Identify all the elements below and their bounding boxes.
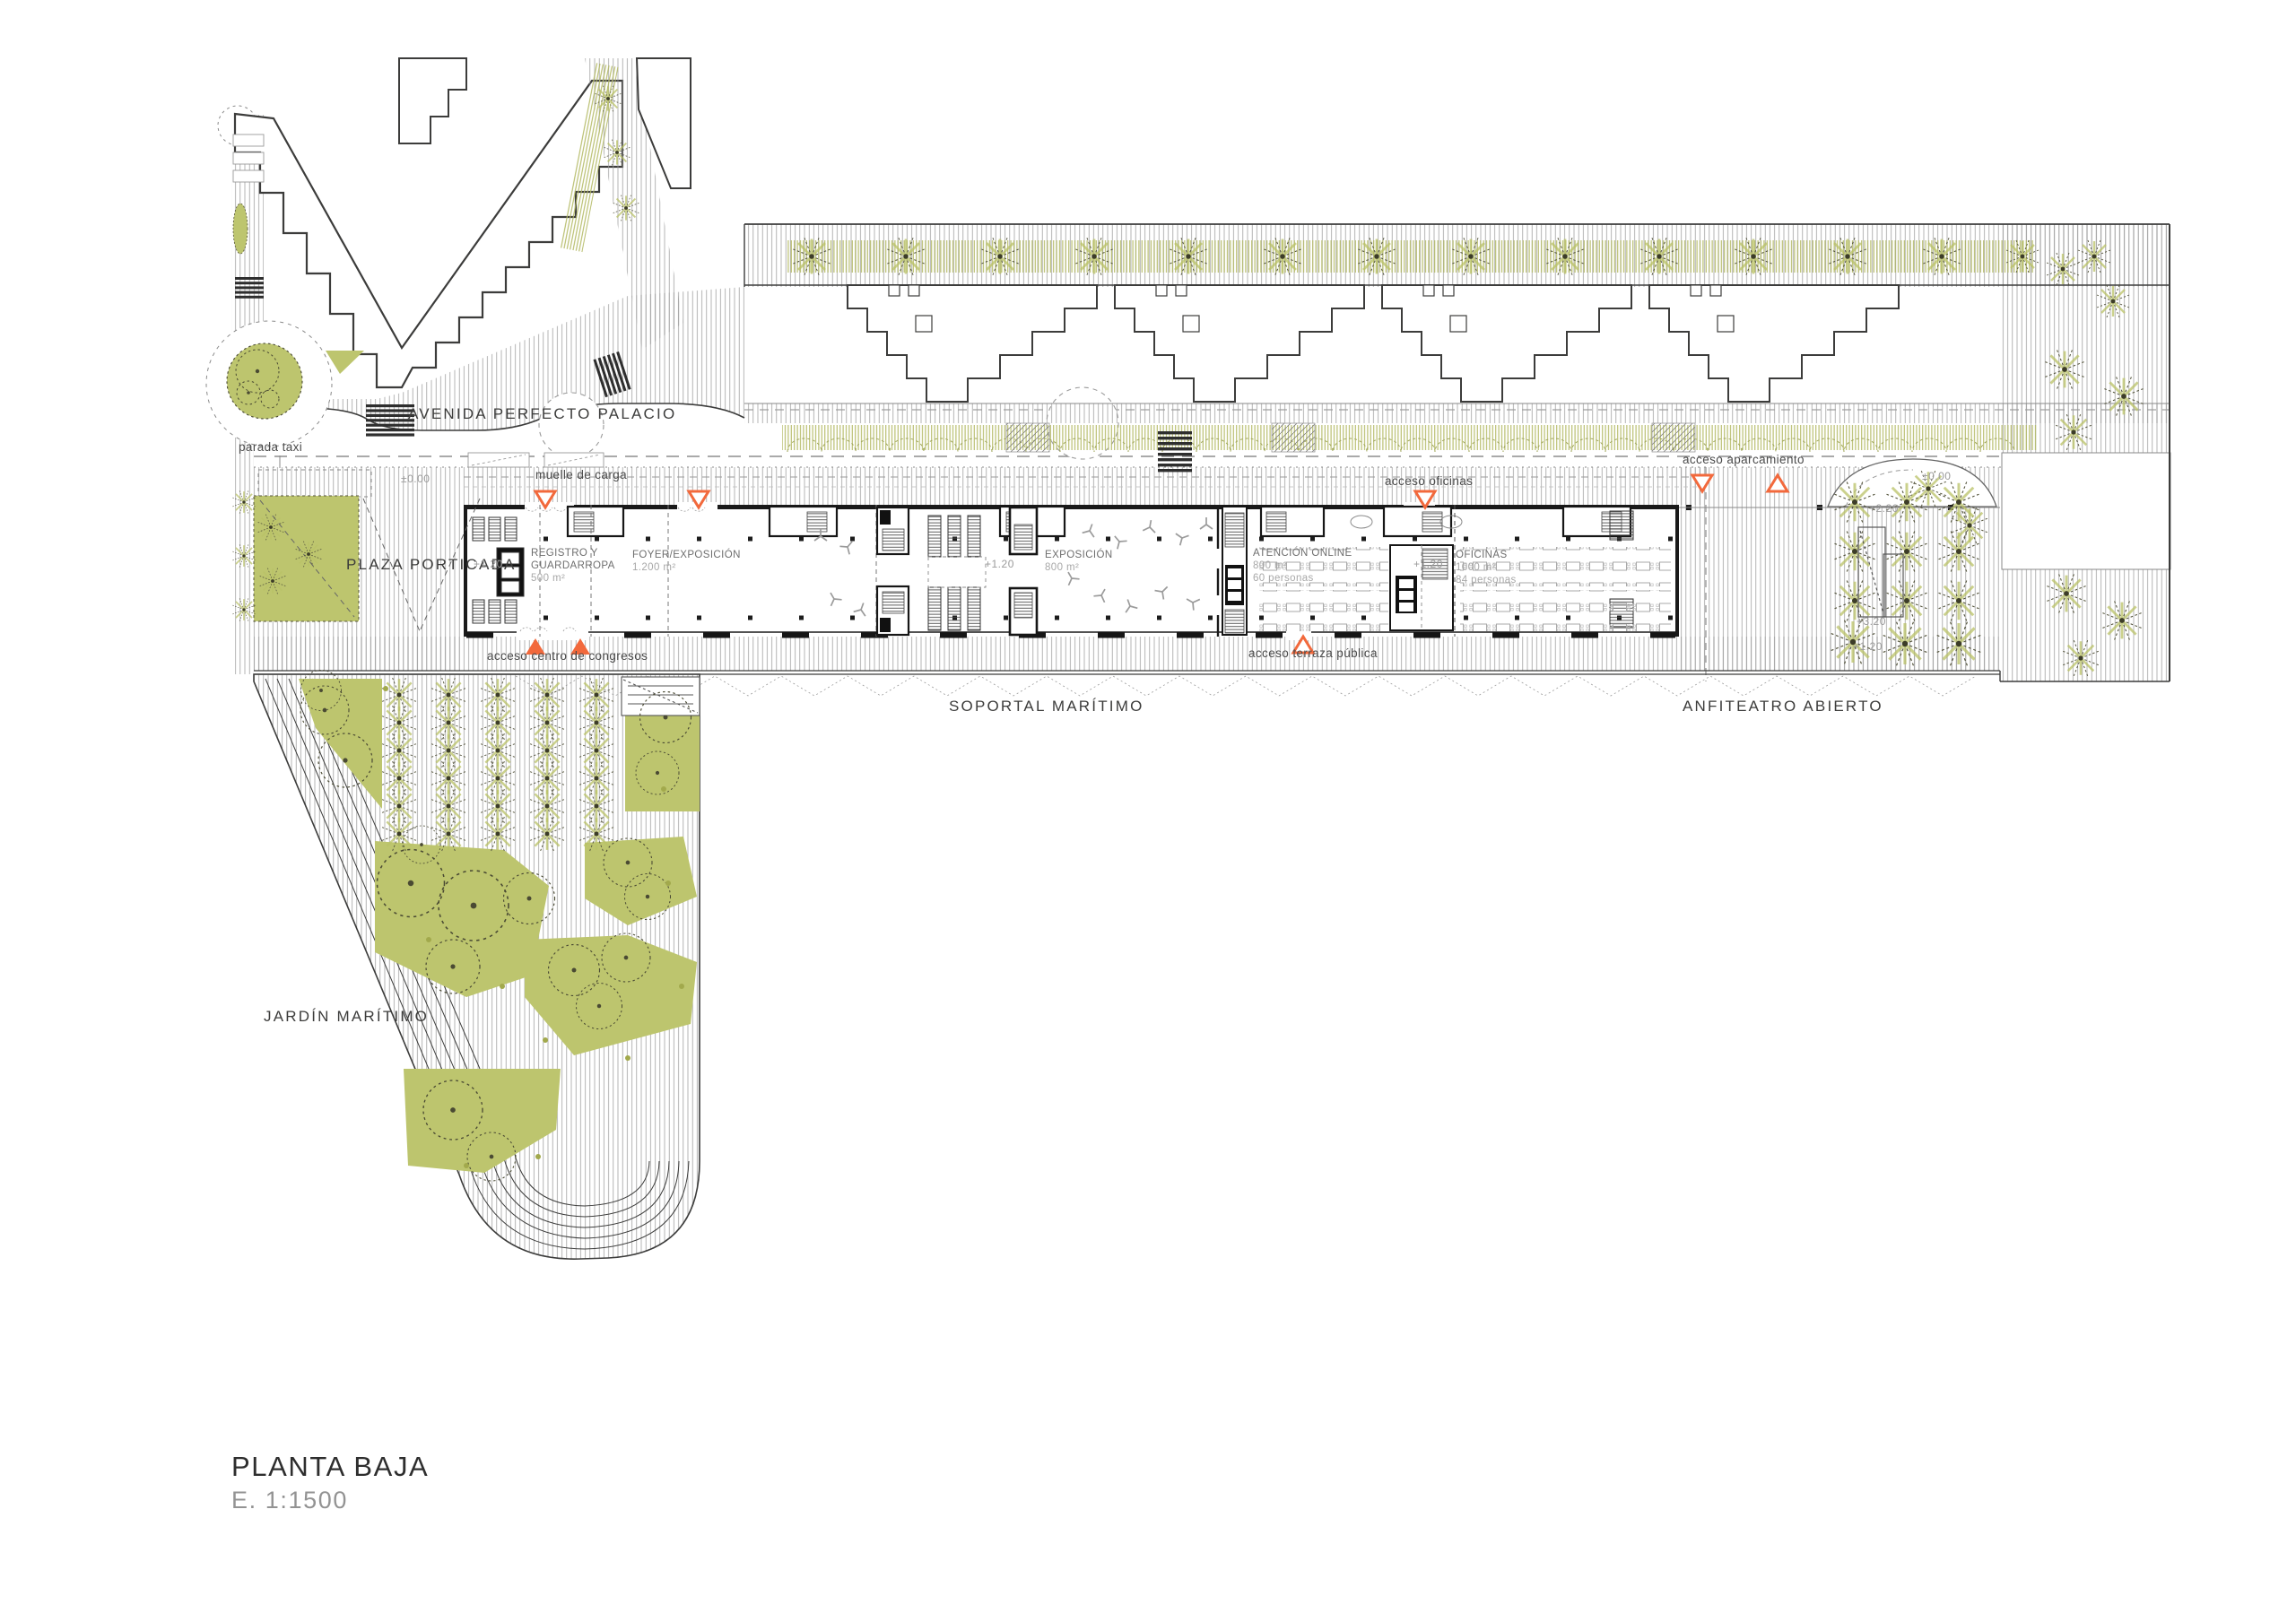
crosswalk-promenade: [1158, 431, 1192, 472]
amphitheater-label: ANFITEATRO ABIERTO: [1683, 698, 1883, 716]
north-promenade: [744, 224, 2170, 507]
level-220: +2.20: [1869, 502, 1899, 515]
soportal-label: SOPORTAL MARÍTIMO: [949, 698, 1144, 716]
level-120-west: +1.20: [474, 558, 503, 570]
maritime-garden: [254, 671, 700, 1260]
congress-access-label: acceso centro de congresos: [487, 649, 648, 663]
taxi-stop-label: parada taxi: [239, 440, 302, 454]
roundabout: [206, 321, 332, 447]
awning-zigzag: [516, 676, 1976, 696]
plan-drawing: [0, 0, 2296, 1622]
loading-dock-label: muelle de carga: [535, 468, 627, 481]
level-120-amphi: +1.20: [1853, 640, 1883, 653]
room-atencion: ATENCIÓN ONLINE 800 m² 60 personas: [1253, 547, 1352, 585]
room-exposicion: EXPOSICIÓN 800 m²: [1045, 549, 1113, 574]
garden-ramp: [622, 677, 700, 716]
avenue-label: AVENIDA PERFECTO PALACIO: [408, 405, 676, 423]
parked-bays: [233, 134, 264, 182]
floor-plan-canvas: AVENIDA PERFECTO PALACIO parada taxi mue…: [0, 0, 2296, 1622]
level-120-east: +1.20: [1413, 558, 1443, 570]
residential-buildings: [848, 285, 1899, 402]
upper-building: [399, 58, 466, 143]
room-registro: REGISTRO Y GUARDARROPA 500 m²: [531, 547, 615, 585]
drawing-scale: E. 1:1500: [231, 1487, 348, 1514]
terrace-access-label: acceso terraza pública: [1248, 646, 1378, 660]
level-ground-west: ±0.00: [401, 473, 430, 485]
room-oficinas: OFICINAS 1000 m² 84 personas: [1456, 549, 1517, 586]
room-foyer: FOYER/EXPOSICIÓN 1.200 m²: [632, 549, 741, 574]
level-120-mid: +1.20: [985, 558, 1014, 570]
garden-label: JARDÍN MARÍTIMO: [264, 1008, 429, 1026]
level-ground-east: ±0.00: [1922, 470, 1951, 482]
offices-access-label: acceso oficinas: [1385, 474, 1473, 488]
parking-access-label: acceso aparcamiento: [1683, 453, 1805, 466]
level-320: +3.20: [1857, 615, 1886, 628]
drawing-title: PLANTA BAJA: [231, 1451, 429, 1483]
loading-bays: [468, 453, 604, 467]
